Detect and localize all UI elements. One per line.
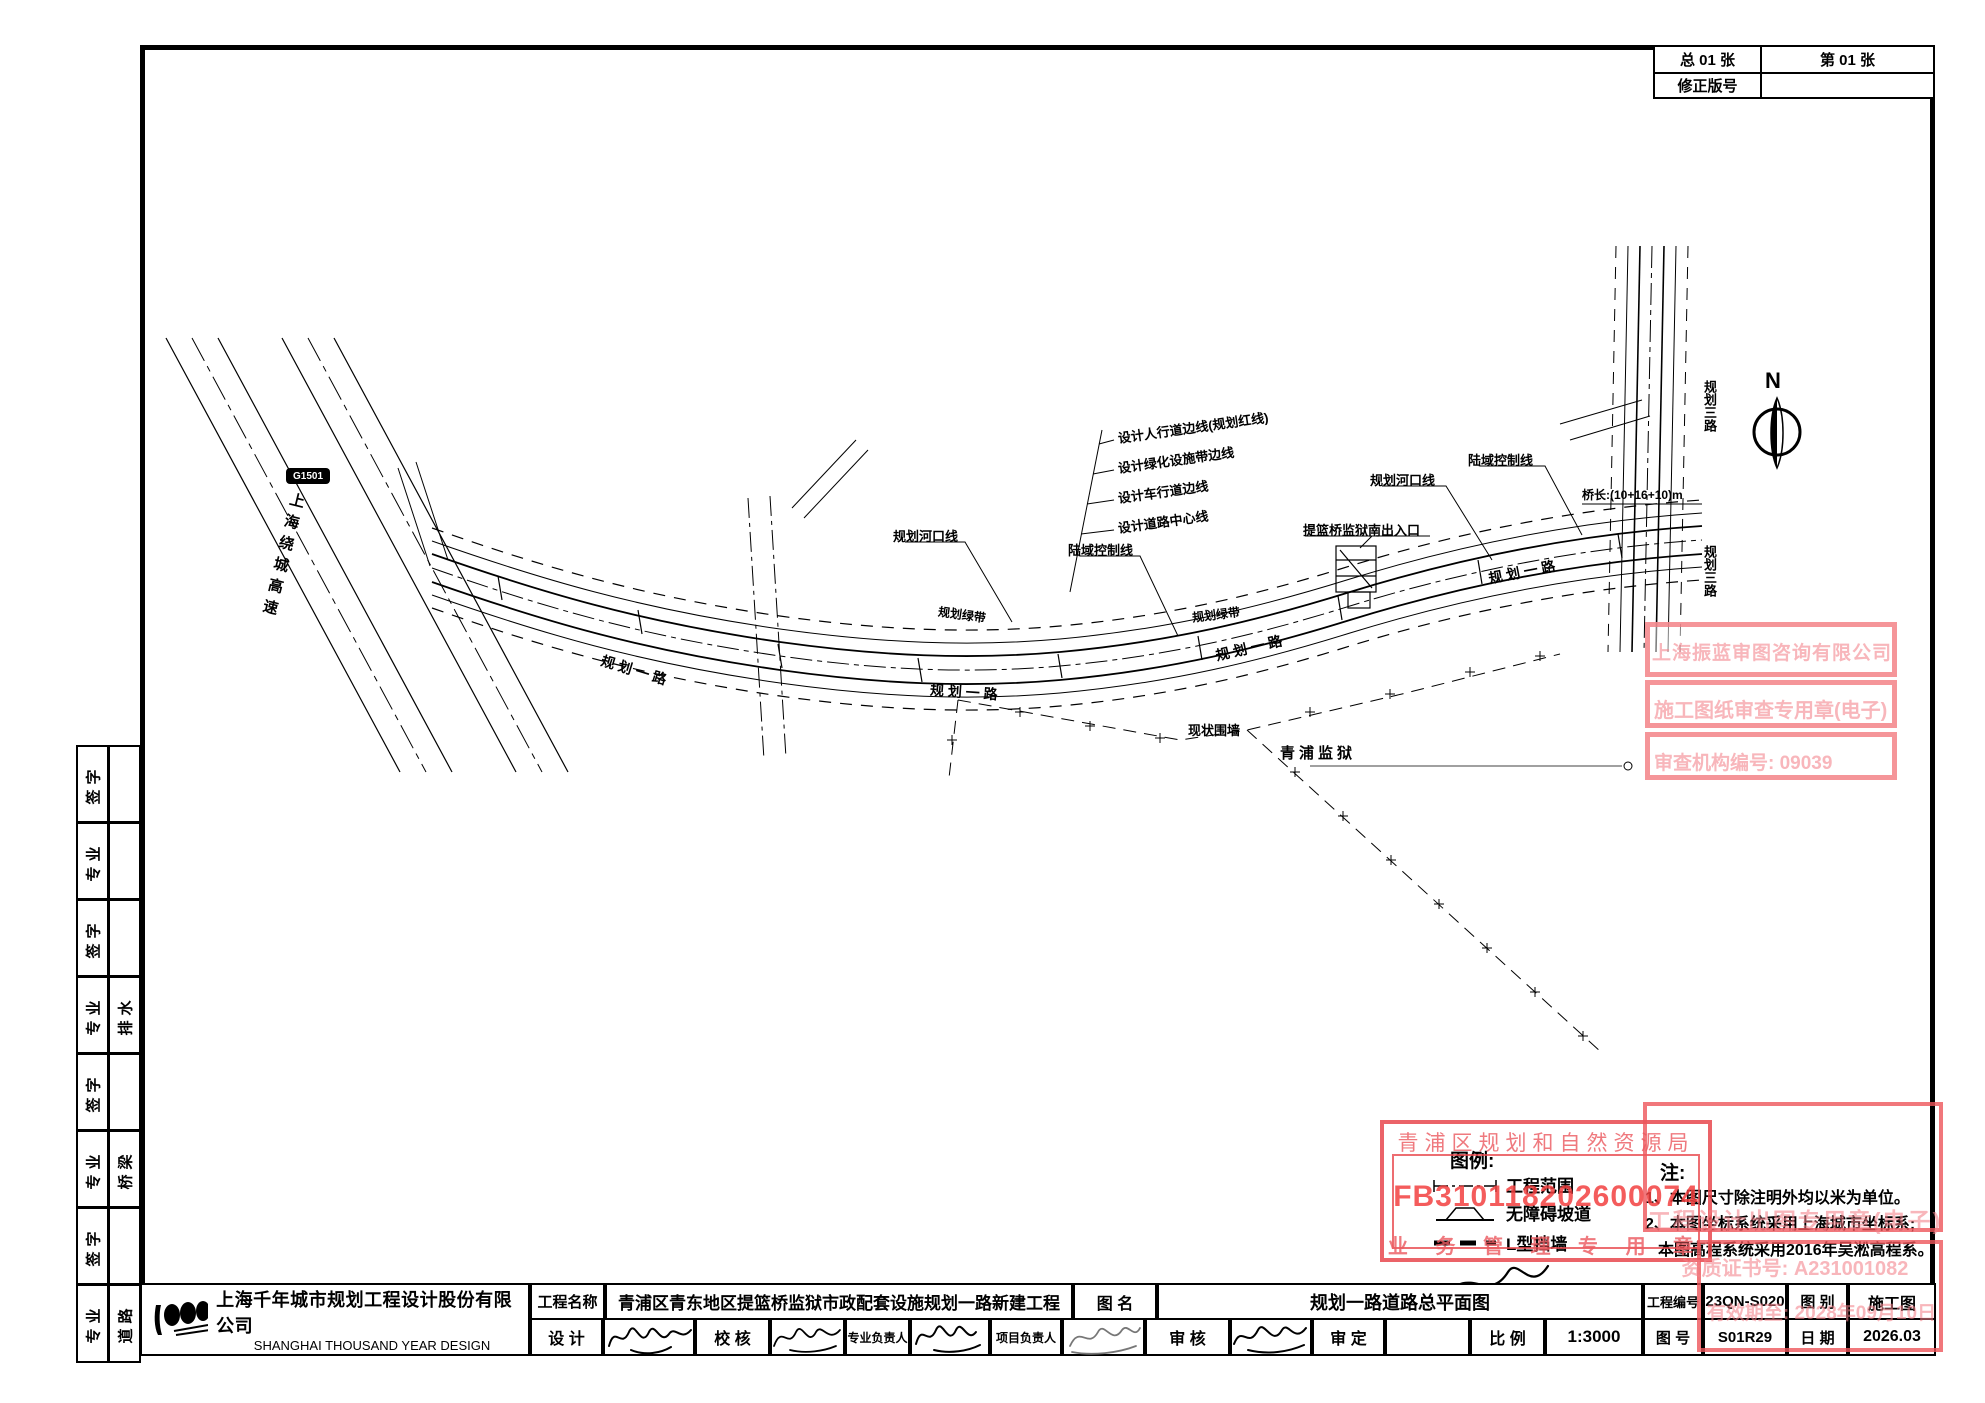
sidebar-label: 签字 <box>82 764 103 804</box>
sidebar-row <box>108 745 141 823</box>
sidebar-row <box>108 1207 141 1285</box>
sidebar-value: 桥梁 <box>114 1149 135 1189</box>
sidebar-label: 专业 <box>82 841 103 881</box>
design-label-cell: 设 计 <box>530 1318 603 1356</box>
sidebar-row: 专业 <box>76 822 109 900</box>
sidebar-row <box>108 822 141 900</box>
total-pages-cell: 总 01 张 <box>1653 45 1762 74</box>
project-lead-label-cell: 项目负责人 <box>990 1318 1062 1356</box>
company-name-cn: 上海千年城市规划工程设计股份有限公司 <box>216 1286 528 1338</box>
design-signature <box>603 1318 695 1356</box>
sidebar-row: 排水 <box>108 976 141 1054</box>
revision-label-cell: 修正版号 <box>1653 72 1762 99</box>
company-cell: 上海千年城市规划工程设计股份有限公司 SHANGHAI THOUSAND YEA… <box>140 1283 530 1356</box>
bridge-length-label: 桥长:(10+16+10)m <box>1582 486 1683 503</box>
project-no-label-cell: 工程编号 <box>1643 1283 1703 1320</box>
road3-label: 规划三路 <box>1700 380 1719 432</box>
sidebar-row: 专业 <box>76 976 109 1054</box>
sidebar-label: 专业 <box>82 1303 103 1343</box>
design-seal-cert: 资质证书号: A231001082 <box>1640 1252 1950 1281</box>
sidebar-value: 排水 <box>114 995 135 1035</box>
sidebar-row: 签字 <box>76 1053 109 1131</box>
project-name-cell: 青浦区青东地区提篮桥监狱市政配套设施规划一路新建工程 <box>605 1283 1073 1320</box>
check-label-cell: 校 核 <box>695 1318 770 1356</box>
drawing-name-label-cell: 图 名 <box>1073 1283 1157 1320</box>
sidebar-row: 专业 <box>76 1284 109 1363</box>
review-stamp-seal-text: 施工图纸审查专用章(电子) <box>1654 694 1887 723</box>
scale-value-cell: 1:3000 <box>1545 1318 1643 1356</box>
north-label: N <box>1765 368 1781 394</box>
qingpu-prison-label: 青浦监狱 <box>1280 742 1356 763</box>
g1501-badge: G1501 <box>286 468 330 484</box>
land-control-line-label: 陆域控制线 <box>1468 450 1533 469</box>
planned-road-3-lines <box>1608 246 1688 652</box>
review-stamp-company: 上海振蓝审图咨询有限公司 <box>1650 638 1894 665</box>
sidebar-row: 签字 <box>76 899 109 977</box>
road3-label: 规划三路 <box>1700 545 1719 597</box>
company-logo <box>150 1301 208 1339</box>
project-label-cell: 工程名称 <box>530 1283 605 1320</box>
highway-g1501-lines <box>166 338 568 772</box>
review-stamp-org-no: 审查机构编号: 09039 <box>1654 748 1832 775</box>
river-mouth-line-label: 规划河口线 <box>893 526 958 545</box>
approve-signature-cell <box>1385 1318 1470 1356</box>
land-control-line-label: 陆域控制线 <box>1068 540 1133 559</box>
page-no-cell: 第 01 张 <box>1760 45 1935 74</box>
planned-road-1-lines <box>432 500 1702 710</box>
sidebar-row: 签字 <box>76 1207 109 1285</box>
north-arrow-icon <box>1754 398 1800 468</box>
sidebar-row <box>108 899 141 977</box>
prison-entrance-label: 提篮桥监狱南出入口 <box>1303 520 1420 539</box>
sidebar-row: 桥梁 <box>108 1130 141 1208</box>
station-ticks <box>498 534 1622 682</box>
design-seal-validity: 有效期至: 2028年09月10日 <box>1700 1298 1943 1325</box>
discipline-lead-label-cell: 专业负责人 <box>845 1318 910 1356</box>
sidebar-row: 道路 <box>108 1284 141 1363</box>
check-signature <box>770 1318 845 1356</box>
sidebar-row: 专业 <box>76 1130 109 1208</box>
sidebar-row <box>108 1053 141 1131</box>
boundary-cross-marks <box>947 651 1588 1041</box>
drawing-name-cell: 规划一路道路总平面图 <box>1157 1283 1643 1320</box>
river-mouth-line-label: 规划河口线 <box>1370 470 1435 489</box>
existing-wall-label: 现状围墙 <box>1188 720 1240 739</box>
project-boundary-dashed <box>947 651 1601 1052</box>
sidebar-value: 道路 <box>114 1303 135 1343</box>
review-signature <box>1230 1318 1312 1356</box>
scale-label-cell: 比 例 <box>1470 1318 1545 1356</box>
sidebar-label: 签字 <box>82 918 103 958</box>
sidebar-label: 签字 <box>82 1072 103 1112</box>
sidebar-label: 专业 <box>82 1149 103 1189</box>
approve-label-cell: 审 定 <box>1312 1318 1385 1356</box>
sidebar-label: 签字 <box>82 1226 103 1266</box>
discipline-lead-signature <box>910 1318 990 1356</box>
company-names: 上海千年城市规划工程设计股份有限公司 SHANGHAI THOUSAND YEA… <box>216 1286 528 1353</box>
drawing-sheet: 总 01 张 第 01 张 修正版号 签字 专业 签字 专业 排水 签字 专业 … <box>0 0 1985 1403</box>
review-stamp-leader <box>1310 762 1632 770</box>
review-label-cell: 审 核 <box>1145 1318 1230 1356</box>
planning-stamp-authority: 青浦区规划和自然资源局 <box>1380 1127 1712 1157</box>
company-name-en: SHANGHAI THOUSAND YEAR DESIGN <box>216 1338 528 1353</box>
sidebar-label: 专业 <box>82 995 103 1035</box>
sidebar-row: 签字 <box>76 745 109 823</box>
revision-value-cell <box>1760 72 1935 99</box>
sheet-no-label-cell: 图 号 <box>1643 1318 1703 1356</box>
design-seal-text: 工程设计出图专用章(电子) <box>1640 1202 1950 1236</box>
project-lead-signature <box>1062 1318 1145 1356</box>
